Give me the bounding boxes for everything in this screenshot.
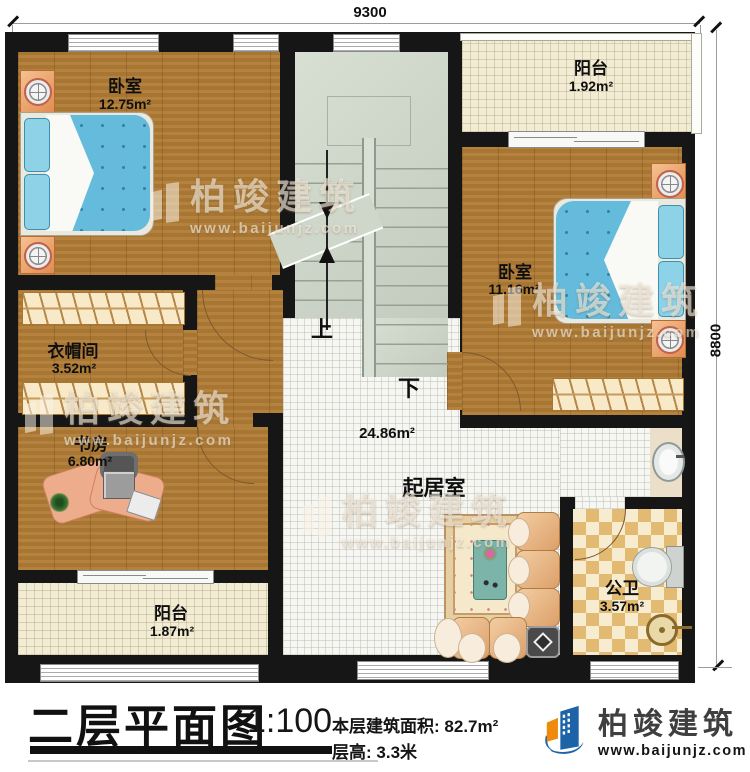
top-dimension-line	[12, 23, 700, 24]
right-dimension-value: 8800	[708, 313, 725, 369]
dimension-tick	[693, 15, 705, 27]
shower-head-icon	[646, 614, 678, 646]
living-label: 起居室	[374, 478, 494, 500]
tv-stand	[526, 626, 560, 658]
living-area: 24.86m²	[337, 426, 437, 442]
balcony-bottom-sliding-door	[77, 570, 214, 584]
sofa-pillow	[508, 518, 530, 547]
window	[68, 34, 159, 52]
faucet-icon	[676, 455, 684, 458]
study-area: 6.80m²	[40, 454, 140, 469]
sofa-pillow	[493, 633, 521, 663]
title-underline	[30, 746, 332, 754]
floor-area-value: 82.7m²	[444, 717, 498, 736]
arrow-down-icon	[319, 202, 335, 219]
window	[357, 661, 489, 680]
washbasin-sink	[652, 442, 685, 482]
balcony-top-area: 1.92m²	[541, 79, 641, 94]
coffee-table	[473, 540, 507, 600]
stair-direction-line	[326, 150, 328, 330]
plant-icon	[50, 493, 69, 512]
stairs-down-label: 下	[389, 377, 429, 400]
company-logo-brand: 柏竣建筑	[598, 699, 747, 743]
study-label: 书房	[41, 436, 141, 454]
stair-steps-right	[372, 150, 448, 377]
title-underline-thin	[28, 760, 378, 762]
bedroom1-doorway	[215, 275, 272, 290]
pillow	[24, 174, 50, 230]
floor-area-info: 本层建筑面积: 82.7m²	[332, 712, 498, 737]
lamp-icon	[656, 326, 684, 354]
arrow-up-icon	[319, 246, 335, 263]
computer-icon	[103, 471, 135, 499]
bathroom-doorway	[575, 497, 625, 509]
lamp-icon	[24, 78, 52, 106]
sofa-pillow	[458, 633, 486, 663]
pillow	[658, 261, 684, 317]
window	[40, 664, 259, 682]
wardrobe	[22, 292, 185, 325]
company-logo-url: www.baijunjz.com	[598, 743, 747, 759]
cloakroom-label: 衣帽间	[23, 343, 123, 361]
floor-height-value: 3.3米	[376, 743, 417, 762]
company-logo-icon	[542, 698, 590, 760]
balcony-bottom-area: 1.87m²	[122, 624, 222, 639]
floor-area-label: 本层建筑面积:	[332, 717, 440, 736]
shower-arm	[672, 626, 692, 629]
bedroom1-area: 12.75m²	[75, 97, 175, 112]
wardrobe	[22, 382, 185, 415]
bathroom-area: 3.57m²	[572, 599, 672, 614]
extension-line	[698, 667, 732, 668]
balcony-top-rail	[460, 33, 700, 41]
window	[233, 34, 279, 52]
dimension-tick	[712, 659, 724, 671]
floor-plan-page: 9300 8800 上 下	[0, 0, 750, 772]
balcony-bottom-label: 阳台	[121, 605, 221, 623]
washbasin-nook-floor	[560, 428, 650, 497]
study-doorway	[197, 413, 253, 427]
lamp-icon	[656, 170, 684, 198]
sofa-pillow	[508, 556, 530, 585]
wardrobe	[552, 378, 684, 411]
floor-height-label: 层高:	[332, 743, 372, 762]
window	[333, 34, 400, 52]
bedroom2-doorway	[447, 352, 462, 410]
stairs-up-label: 上	[302, 318, 342, 341]
balcony-right-rail	[691, 33, 702, 134]
dimension-tick	[7, 15, 19, 27]
bedroom2-area: 11.16m²	[464, 282, 564, 297]
window	[590, 661, 679, 680]
top-dimension-value: 9300	[335, 4, 405, 21]
cloakroom-area: 3.52m²	[24, 361, 124, 376]
bathroom-label: 公卫	[572, 580, 672, 598]
pillow	[658, 205, 684, 259]
bedroom2-label: 卧室	[465, 264, 565, 282]
pillow	[24, 118, 50, 172]
stair-divider	[362, 138, 376, 377]
drawing-scale: 1:100	[247, 702, 332, 741]
balcony-top-label: 阳台	[541, 60, 641, 78]
bedroom1-label: 卧室	[75, 78, 175, 96]
company-logo: 柏竣建筑 www.baijunjz.com	[542, 694, 747, 764]
balcony-top-sliding-door	[508, 131, 645, 148]
floor-height-info: 层高: 3.3米	[332, 738, 417, 763]
lamp-icon	[24, 242, 52, 270]
